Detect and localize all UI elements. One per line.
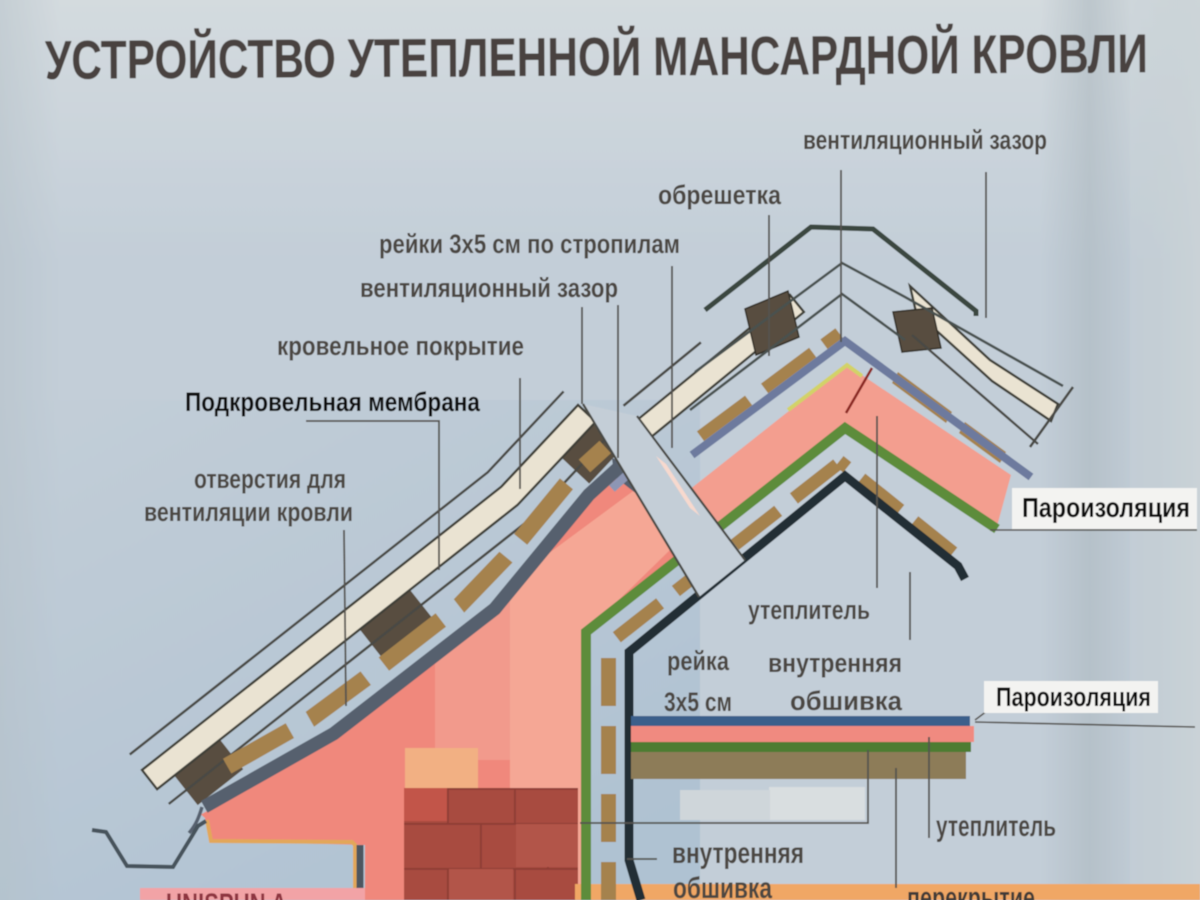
svg-text:кровельное покрытие: кровельное покрытие xyxy=(277,331,524,361)
svg-text:UNISPUN A: UNISPUN A xyxy=(166,888,287,900)
svg-text:вентиляционный зазор: вентиляционный зазор xyxy=(803,125,1047,155)
svg-text:обшивка: обшивка xyxy=(790,686,903,716)
svg-text:вентиляционный зазор: вентиляционный зазор xyxy=(360,273,618,303)
svg-text:вентиляции кровли: вентиляции кровли xyxy=(144,497,353,527)
svg-text:рейки 3х5 см по стропилам: рейки 3х5 см по стропилам xyxy=(379,229,680,259)
svg-text:обшивка: обшивка xyxy=(673,872,772,900)
svg-text:Пароизоляция: Пароизоляция xyxy=(996,682,1151,712)
svg-text:внутренняя: внутренняя xyxy=(768,648,902,678)
svg-text:перекрытие: перекрытие xyxy=(907,880,1035,900)
svg-text:отверстия для: отверстия для xyxy=(194,464,346,494)
svg-text:рейка: рейка xyxy=(667,646,730,676)
svg-text:УСТРОЙСТВО УТЕПЛЕННОЙ МАНСАРДН: УСТРОЙСТВО УТЕПЛЕННОЙ МАНСАРДНОЙ КРОВЛИ xyxy=(45,21,1148,91)
svg-text:обрешетка: обрешетка xyxy=(658,180,782,210)
svg-text:внутренняя: внутренняя xyxy=(672,837,804,870)
svg-text:Пароизоляция: Пароизоляция xyxy=(1022,492,1190,523)
svg-text:3х5 см: 3х5 см xyxy=(664,687,732,717)
svg-text:утеплитель: утеплитель xyxy=(748,595,870,625)
svg-text:утеплитель: утеплитель xyxy=(936,810,1056,843)
svg-text:Подкровельная мембрана: Подкровельная мембрана xyxy=(185,387,481,417)
